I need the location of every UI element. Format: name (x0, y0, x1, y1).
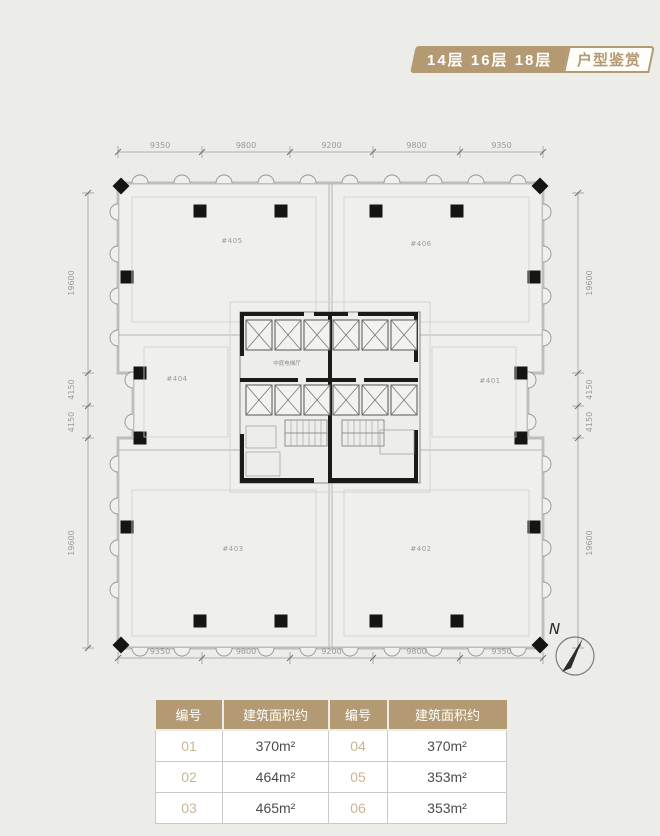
unit-id-cell: 03 (156, 793, 223, 824)
table-header-row: 编号 建筑面积约 编号 建筑面积约 (156, 700, 507, 730)
dim-right-4: 19600 (585, 530, 594, 555)
core-lobby-label: 中庭电梯厅 (273, 359, 301, 367)
unit-id-cell: 02 (156, 762, 223, 793)
unit-label-405: #405 (221, 237, 242, 245)
dim-bottom-4: 9800 (406, 647, 426, 656)
dim-top-1: 9350 (150, 141, 170, 150)
huxing-tag: 户型鉴赏 (563, 46, 655, 73)
north-letter: N (549, 620, 560, 638)
huxing-tag-label: 户型鉴赏 (577, 49, 641, 70)
header-area-1: 建筑面积约 (223, 700, 329, 730)
dim-top-2: 9800 (236, 141, 256, 150)
dim-left-2: 4150 (67, 379, 76, 399)
north-arrow: N (549, 620, 594, 675)
dim-left-1: 19600 (67, 270, 76, 295)
dim-right-3: 4150 (585, 412, 594, 432)
unit-label-402: #402 (410, 545, 431, 553)
dim-top-4: 9800 (406, 141, 426, 150)
dim-right-1: 19600 (585, 270, 594, 295)
table-row: 03 465m² 06 353m² (156, 793, 507, 824)
unit-area-cell: 370m² (388, 730, 507, 762)
table-row: 01 370m² 04 370m² (156, 730, 507, 762)
unit-area-cell: 353m² (388, 793, 507, 824)
unit-area-cell: 353m² (388, 762, 507, 793)
unit-area-table: 编号 建筑面积约 编号 建筑面积约 01 370m² 04 370m² 02 4… (155, 700, 507, 824)
unit-id-cell: 04 (329, 730, 388, 762)
unit-area-cell: 465m² (223, 793, 329, 824)
dim-bottom-2: 9800 (236, 647, 256, 656)
floors-badge: 14层 16层 18层 (410, 46, 569, 73)
dim-top-5: 9350 (491, 141, 511, 150)
unit-label-403: #403 (222, 545, 243, 553)
unit-id-cell: 05 (329, 762, 388, 793)
dim-top-3: 9200 (321, 141, 341, 150)
dim-bottom-3: 9200 (321, 647, 341, 656)
header-unit-id-2: 编号 (329, 700, 388, 730)
unit-area-cell: 370m² (223, 730, 329, 762)
unit-label-404: #404 (166, 375, 187, 383)
unit-id-cell: 01 (156, 730, 223, 762)
north-needle (562, 638, 583, 672)
dim-bottom-5: 9350 (491, 647, 511, 656)
unit-label-406: #406 (410, 240, 431, 248)
dim-right-2: 4150 (585, 379, 594, 399)
dim-bottom-1: 9350 (150, 647, 170, 656)
unit-area-cell: 464m² (223, 762, 329, 793)
header-unit-id-1: 编号 (156, 700, 223, 730)
dim-left-3: 4150 (67, 412, 76, 432)
elevator-core (230, 302, 430, 492)
table-row: 02 464m² 05 353m² (156, 762, 507, 793)
unit-id-cell: 06 (329, 793, 388, 824)
floor-banner: 14层 16层 18层 户型鉴赏 (410, 46, 655, 73)
dim-left-4: 19600 (67, 530, 76, 555)
unit-label-401: #401 (479, 377, 500, 385)
floors-badge-label: 14层 16层 18层 (427, 49, 552, 70)
header-area-2: 建筑面积约 (388, 700, 507, 730)
